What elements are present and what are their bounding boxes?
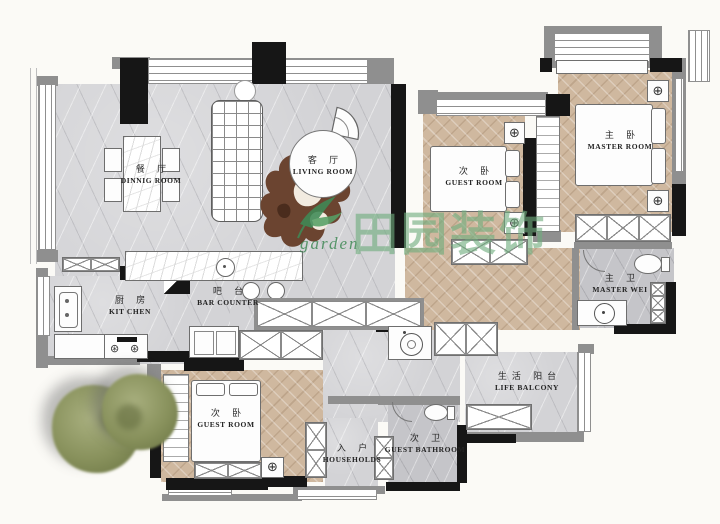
ceiling-light-icon: ⊕ [653, 84, 664, 99]
dining-chair [162, 178, 180, 202]
wall-segment [36, 250, 58, 262]
dining-chair [104, 148, 122, 172]
watermark-brand: 田园装饰 [352, 198, 548, 264]
entry-floor [325, 418, 378, 488]
kitchen-sink [54, 286, 82, 332]
bed-bench [194, 462, 262, 479]
hall-cabinet [189, 326, 239, 358]
ceiling-light-icon: ⊕ [509, 126, 520, 141]
shower-shelf [650, 282, 666, 324]
exterior-frame-line [30, 68, 37, 264]
kitchen-window [36, 276, 50, 336]
pillow [651, 108, 666, 144]
shoe-cabinet [374, 436, 394, 480]
tree-icon [102, 374, 178, 450]
living-room-label-en: LIVING ROOM [293, 167, 353, 176]
nightstand: ⊕ [261, 457, 284, 478]
wall-segment [672, 184, 686, 236]
toilet-icon [424, 404, 448, 421]
nightstand: ⊕ [504, 122, 525, 144]
wall-segment [378, 396, 460, 405]
dining-table [123, 136, 161, 212]
wall-segment [120, 58, 148, 124]
wardrobe [575, 214, 671, 242]
wall-segment [252, 42, 286, 84]
master-bed [575, 104, 653, 186]
entry-threshold [297, 488, 377, 500]
wall-segment [166, 478, 268, 490]
wall-segment [184, 357, 244, 371]
pendant-lamp-icon [234, 80, 256, 102]
sink-drain [602, 311, 605, 314]
toilet-tank [661, 257, 670, 272]
ceiling-light-icon: ⊕ [653, 194, 664, 209]
toilet-tank [447, 406, 455, 420]
wall-segment [546, 94, 570, 116]
wall-segment [418, 90, 438, 114]
bay-window-seat [556, 60, 648, 74]
exterior-unit [688, 30, 710, 82]
dining-left-window [38, 84, 56, 250]
wardrobe [239, 330, 323, 360]
bar-counter [125, 251, 303, 281]
guest-room-top-window [436, 98, 546, 116]
floor-plan: 客 厅 LIVING ROOM ⊛ ⊛ ⊕ ⊕ ⊕ ⊕ [0, 0, 720, 524]
wall-segment [368, 58, 394, 84]
watermark-script: garden [300, 234, 360, 254]
balcony-cabinet [434, 322, 498, 356]
kitchen-cabinet [62, 257, 120, 272]
washing-machine-icon [388, 326, 432, 360]
wall-segment [328, 396, 378, 404]
nightstand: ⊕ [647, 190, 669, 212]
bar-sink-drain [223, 265, 226, 268]
nightstand: ⊕ [647, 80, 669, 102]
pillow [229, 383, 258, 396]
living-room-badge: 客 厅 LIVING ROOM [289, 130, 357, 198]
shoe-cabinet [305, 422, 327, 478]
wall-segment [540, 58, 552, 72]
wall-segment [386, 482, 460, 491]
ceiling-light-icon: ⊕ [267, 460, 278, 475]
wall-segment [574, 242, 672, 249]
stove: ⊛ ⊛ [104, 334, 148, 359]
burner-icon: ⊛ [110, 342, 119, 355]
living-room-label: 客 厅 LIVING ROOM [293, 153, 353, 176]
pillow [651, 148, 666, 184]
balcony-window [577, 352, 591, 432]
sofa [211, 100, 263, 222]
dining-chair [104, 178, 122, 202]
master-bay-window [554, 32, 650, 62]
burner-icon: ⊛ [130, 342, 139, 355]
master-right-window [674, 78, 684, 172]
dining-chair [162, 148, 180, 172]
living-room-label-zh: 客 厅 [303, 153, 343, 166]
toilet-icon [634, 254, 662, 274]
wall-segment [458, 434, 516, 443]
balcony-cabinet [466, 404, 532, 430]
pillow [505, 150, 520, 177]
pillow [196, 383, 225, 396]
wall-segment [650, 58, 682, 72]
